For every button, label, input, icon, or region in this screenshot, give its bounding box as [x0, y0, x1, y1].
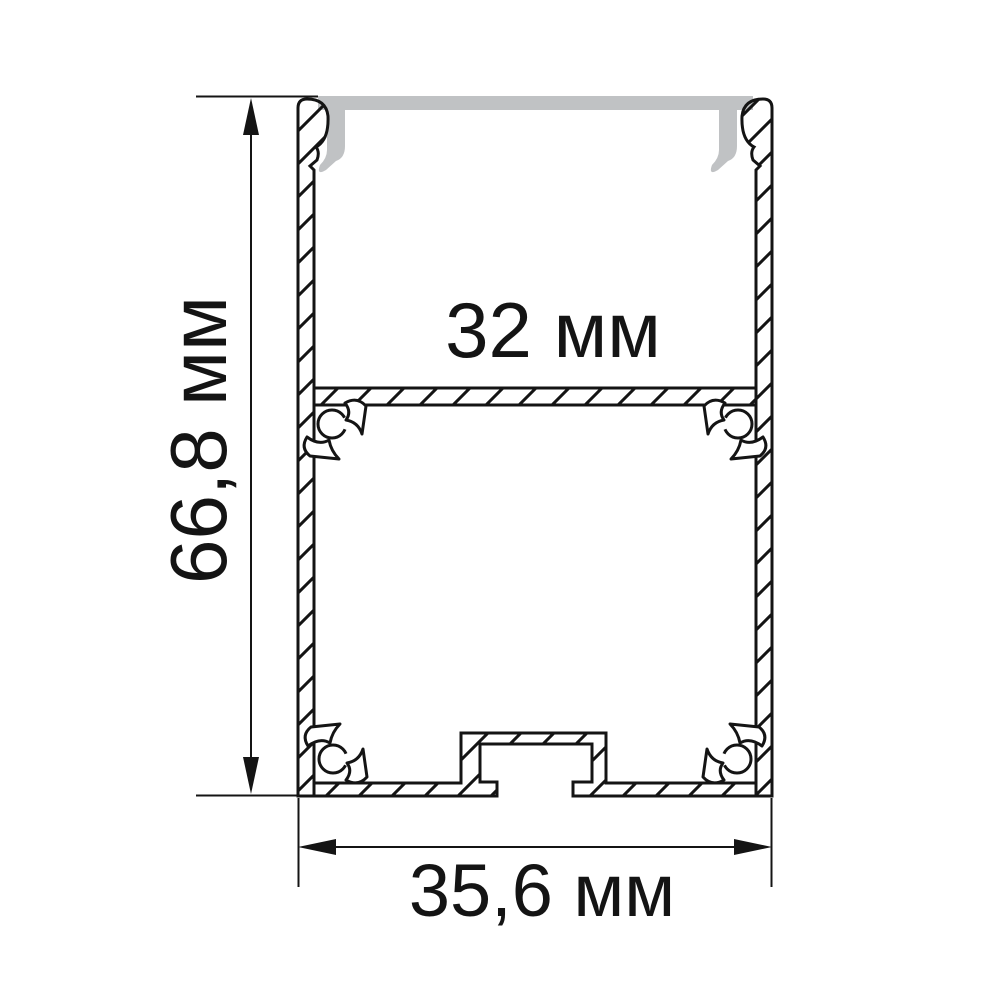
diffuser-right-hook: [711, 100, 737, 172]
bottom-base-section: [314, 733, 756, 796]
dim-arrow-down-icon: [243, 757, 259, 794]
diffuser-cover: [318, 96, 753, 172]
dim-arrow-left-icon: [298, 839, 336, 855]
led-shelf-partition: [314, 388, 756, 405]
inner-width-dimension-label: 32 мм: [445, 286, 661, 374]
height-dimension: 66,8 мм: [154, 97, 318, 796]
outer-width-dimension-label: 35,6 мм: [409, 849, 675, 932]
diffuser-top-plate: [318, 96, 753, 110]
profile-drawing-canvas: 66,8 мм 32 мм 35,6 мм: [0, 0, 1000, 1000]
drawing-page: 66,8 мм 32 мм 35,6 мм: [0, 0, 1000, 1000]
height-dimension-label: 66,8 мм: [154, 296, 243, 584]
dim-arrow-right-icon: [734, 839, 772, 855]
dim-arrow-up-icon: [243, 98, 259, 135]
outer-width-dimension: 35,6 мм: [298, 798, 772, 932]
